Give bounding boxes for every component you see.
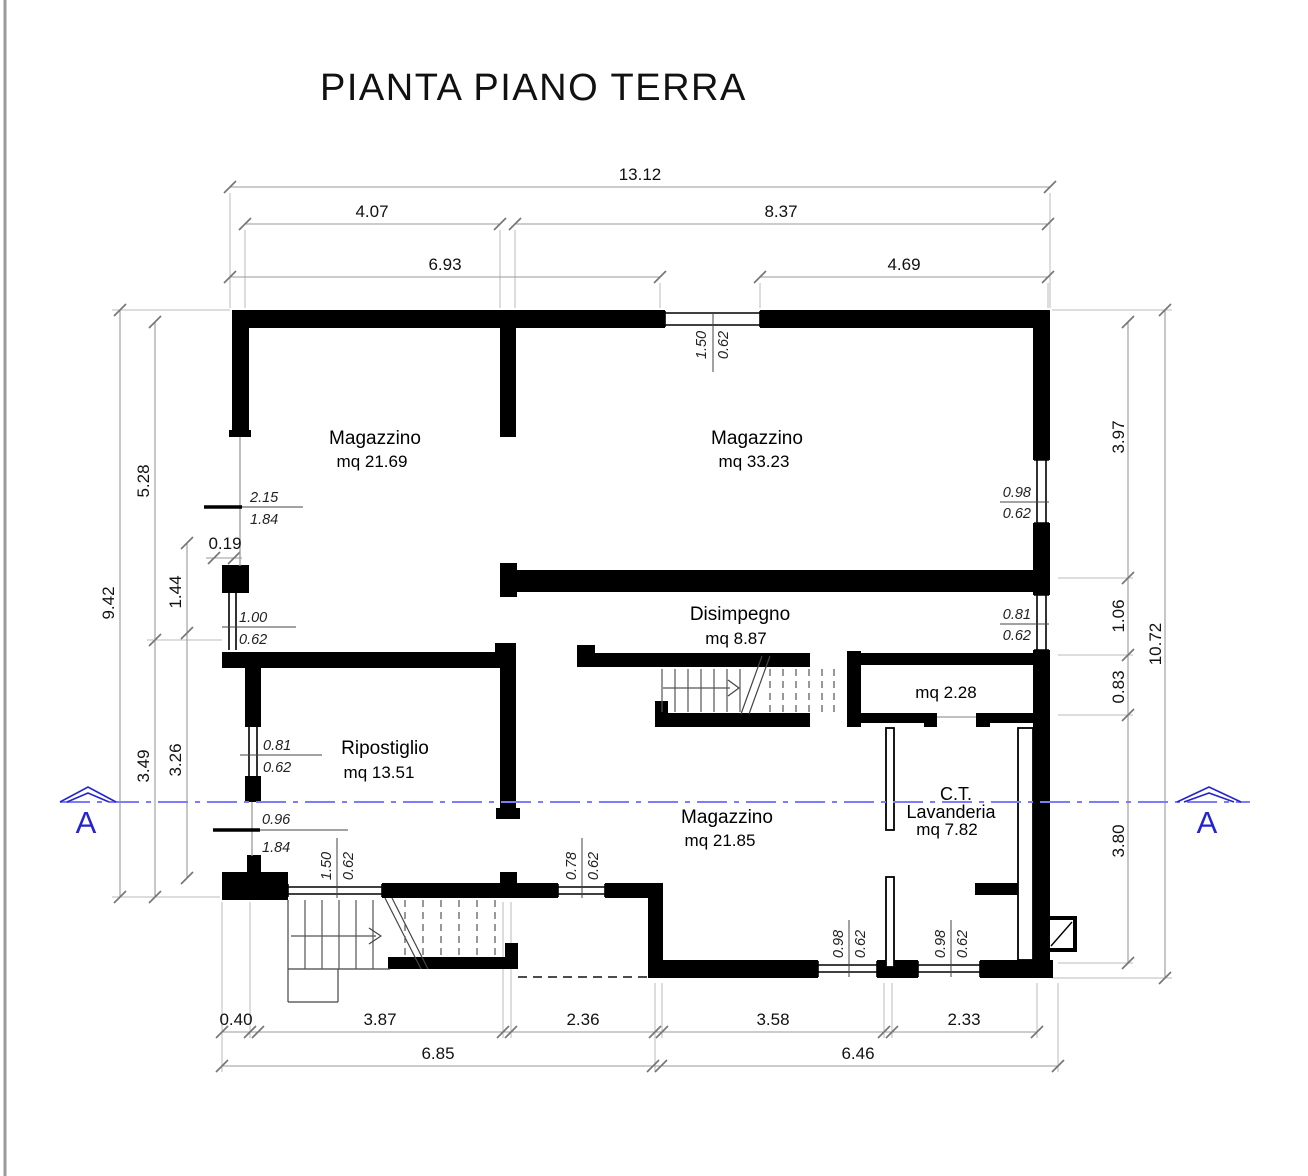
floor-plan-drawing: PIANTA PIANO TERRA bbox=[0, 0, 1308, 1176]
dim-bottom-total-left: 6.85 bbox=[421, 1044, 454, 1063]
dim-left-lower: 3.49 bbox=[134, 749, 153, 782]
svg-text:0.62: 0.62 bbox=[716, 331, 732, 359]
room-area-magazzino-2: mq 33.23 bbox=[719, 452, 790, 471]
svg-text:0.78: 0.78 bbox=[564, 852, 580, 880]
svg-text:1.84: 1.84 bbox=[262, 840, 290, 856]
room-area-disimpegno: mq 8.87 bbox=[705, 629, 766, 648]
dim-bottom-5: 2.33 bbox=[947, 1010, 980, 1029]
room-name-ripostiglio: Ripostiglio bbox=[341, 738, 429, 759]
dim-top-inner-right: 4.69 bbox=[887, 255, 920, 274]
window-left-ripostiglio bbox=[246, 727, 260, 776]
section-line: A A bbox=[60, 787, 1250, 840]
svg-text:0.81: 0.81 bbox=[263, 738, 291, 754]
dim-bottom-1: 0.40 bbox=[219, 1010, 252, 1029]
dim-top-total: 13.12 bbox=[619, 165, 662, 184]
dim-left-inner-upper: 1.44 bbox=[166, 575, 185, 608]
svg-text:1.50: 1.50 bbox=[694, 331, 710, 359]
window-bottom-lower-2 bbox=[918, 961, 980, 977]
svg-text:2.15: 2.15 bbox=[249, 490, 279, 506]
dim-top-inner-left: 6.93 bbox=[428, 255, 461, 274]
room-name-ct: C.T. bbox=[940, 784, 972, 804]
dim-right-2: 1.06 bbox=[1109, 599, 1128, 632]
dim-right-4: 3.80 bbox=[1109, 824, 1128, 857]
svg-text:0.62: 0.62 bbox=[586, 852, 602, 880]
room-name-magazzino-1: Magazzino bbox=[329, 428, 421, 449]
room-area-ripostiglio: mq 13.51 bbox=[344, 763, 415, 782]
svg-text:0.62: 0.62 bbox=[341, 852, 357, 880]
room-area-magazzino-3: mq 21.85 bbox=[685, 831, 756, 850]
section-label-right: A bbox=[1197, 805, 1218, 840]
dim-top-left: 4.07 bbox=[355, 202, 388, 221]
svg-text:0.62: 0.62 bbox=[239, 632, 267, 648]
room-name-disimpegno: Disimpegno bbox=[690, 604, 790, 625]
room-name-magazzino-3: Magazzino bbox=[681, 807, 773, 828]
dim-bottom-total-right: 6.46 bbox=[841, 1044, 874, 1063]
window-bottom-left bbox=[288, 884, 382, 897]
svg-text:0.98: 0.98 bbox=[933, 930, 949, 958]
svg-text:0.96: 0.96 bbox=[262, 812, 291, 828]
svg-text:1.84: 1.84 bbox=[250, 512, 278, 528]
window-right-upper bbox=[1034, 460, 1049, 523]
opening-annotations: 1.50 0.62 0.98 0.62 0.81 0.62 2.15 1.84 … bbox=[204, 313, 1049, 977]
section-marker-right-icon bbox=[1177, 787, 1241, 802]
annotation-door-left-upper: 2.15 1.84 bbox=[204, 490, 303, 528]
svg-text:0.98: 0.98 bbox=[1003, 485, 1031, 501]
dim-bottom-4: 3.58 bbox=[756, 1010, 789, 1029]
window-bottom-lower-1 bbox=[818, 961, 877, 977]
dim-right-1: 3.97 bbox=[1109, 420, 1128, 453]
annotation-door-left-lower: 0.96 1.84 bbox=[213, 812, 348, 856]
svg-text:0.62: 0.62 bbox=[263, 760, 291, 776]
dim-top-right: 8.37 bbox=[764, 202, 797, 221]
room-name-magazzino-2: Magazzino bbox=[711, 428, 803, 449]
dim-right-3: 0.83 bbox=[1109, 670, 1128, 703]
section-marker-left-icon bbox=[60, 787, 116, 802]
dim-right-total: 10.72 bbox=[1146, 623, 1165, 666]
wall-openings bbox=[240, 437, 976, 856]
dim-bottom-3: 2.36 bbox=[566, 1010, 599, 1029]
svg-text:1.50: 1.50 bbox=[319, 852, 335, 880]
svg-text:0.62: 0.62 bbox=[1003, 628, 1031, 644]
svg-text:1.00: 1.00 bbox=[239, 610, 267, 626]
svg-text:0.62: 0.62 bbox=[853, 930, 869, 958]
external-stairs bbox=[288, 898, 648, 1002]
section-label-left: A bbox=[76, 805, 97, 840]
svg-text:0.98: 0.98 bbox=[831, 930, 847, 958]
room-area-magazzino-1: mq 21.69 bbox=[337, 452, 408, 471]
dim-left-total: 9.42 bbox=[99, 586, 118, 619]
window-left-upper bbox=[227, 593, 239, 650]
room-labels: Magazzino mq 21.69 Magazzino mq 33.23 Di… bbox=[329, 428, 996, 850]
flue-symbol bbox=[1048, 918, 1075, 950]
dim-left-upper: 5.28 bbox=[134, 464, 153, 497]
window-right-mid bbox=[1034, 595, 1049, 650]
room-subname-ct: Lavanderia bbox=[906, 802, 996, 822]
dim-bottom-2: 3.87 bbox=[363, 1010, 396, 1029]
svg-text:0.62: 0.62 bbox=[955, 930, 971, 958]
room-area-locale: mq 2.28 bbox=[915, 683, 976, 702]
svg-text:0.81: 0.81 bbox=[1003, 607, 1031, 623]
svg-text:0.62: 0.62 bbox=[1003, 506, 1031, 522]
room-area-ct: mq 7.82 bbox=[916, 820, 977, 839]
drawing-sheet: PIANTA PIANO TERRA bbox=[0, 0, 1308, 1176]
dim-left-inner-lower: 3.26 bbox=[166, 743, 185, 776]
dim-left-wall-thickness: 0.19 bbox=[208, 534, 241, 553]
page-title: PIANTA PIANO TERRA bbox=[320, 67, 747, 109]
